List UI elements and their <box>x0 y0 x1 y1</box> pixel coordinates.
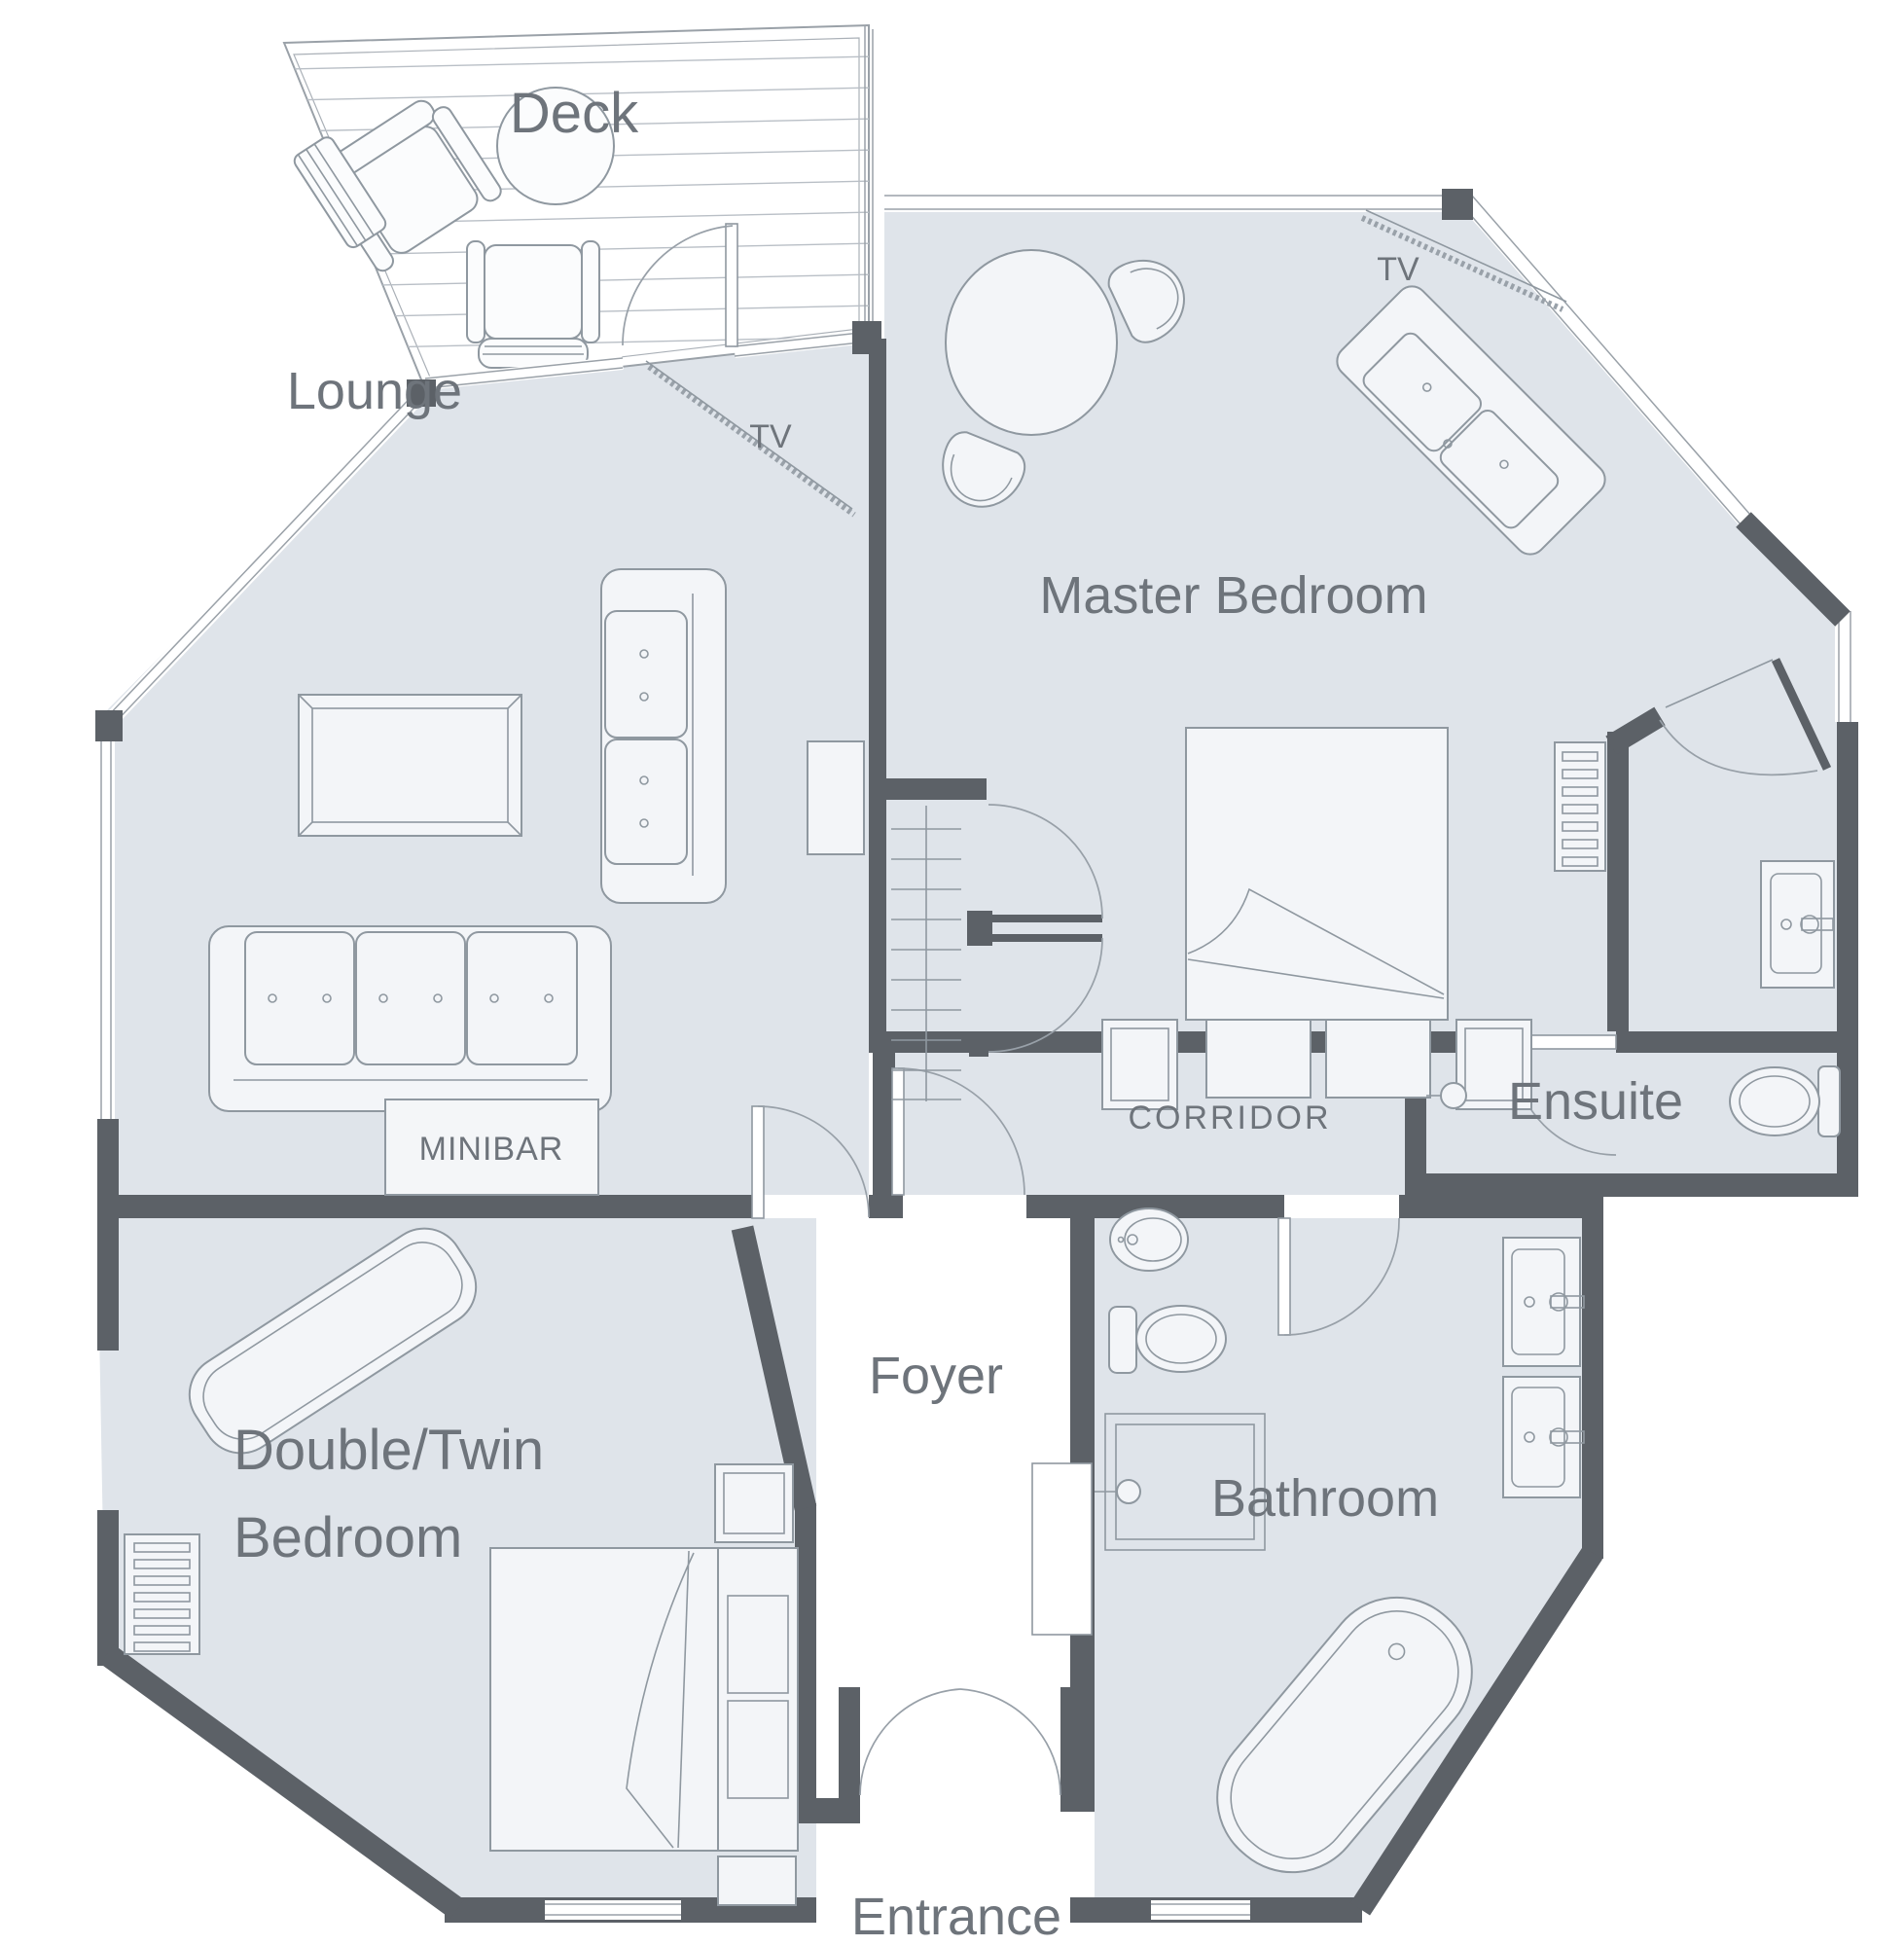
dt-radiator <box>125 1534 199 1654</box>
master-round-table <box>946 250 1117 435</box>
lounge-sofa-2seat <box>601 569 726 903</box>
bathroom-sink-2 <box>1503 1377 1584 1497</box>
lounge-sofa-3seat <box>209 926 611 1111</box>
bathroom-toilet <box>1109 1306 1226 1373</box>
deck-label: Deck <box>510 82 639 145</box>
master-bedroom-label: Master Bedroom <box>1039 566 1427 625</box>
master-tv-label: TV <box>1377 251 1419 288</box>
double-twin-label-2: Bedroom <box>234 1506 462 1569</box>
lounge-wall-cabinet <box>808 741 864 854</box>
deck: Deck <box>243 25 876 389</box>
foyer-console-table <box>1032 1463 1092 1635</box>
master-right-window <box>1835 611 1854 722</box>
entrance-double-door <box>860 1689 1060 1795</box>
ensuite-toilet <box>1730 1066 1840 1136</box>
foyer: Foyer Entrance <box>851 1347 1092 1946</box>
foyer-label: Foyer <box>869 1347 1003 1405</box>
minibar-label: MINIBAR <box>419 1131 564 1168</box>
nook-sink <box>1761 861 1834 988</box>
bathroom-sink-1 <box>1503 1238 1584 1366</box>
bidet <box>1110 1208 1188 1271</box>
double-twin-label-1: Double/Twin <box>234 1419 544 1482</box>
master-radiator <box>1555 742 1605 871</box>
bathroom-label: Bathroom <box>1211 1469 1439 1528</box>
coffee-table <box>299 695 521 836</box>
lounge-left-window <box>97 738 115 1119</box>
deck-armchair-2 <box>467 241 599 368</box>
corridor-label: CORRIDOR <box>1128 1099 1331 1136</box>
minibar-box: MINIBAR <box>385 1099 598 1195</box>
entrance-label: Entrance <box>851 1888 1061 1946</box>
ensuite-label: Ensuite <box>1508 1072 1683 1131</box>
lounge-label: Lounge <box>287 362 462 420</box>
lounge-tv-label: TV <box>749 418 792 455</box>
floor-plan: Deck <box>0 0 1904 1946</box>
